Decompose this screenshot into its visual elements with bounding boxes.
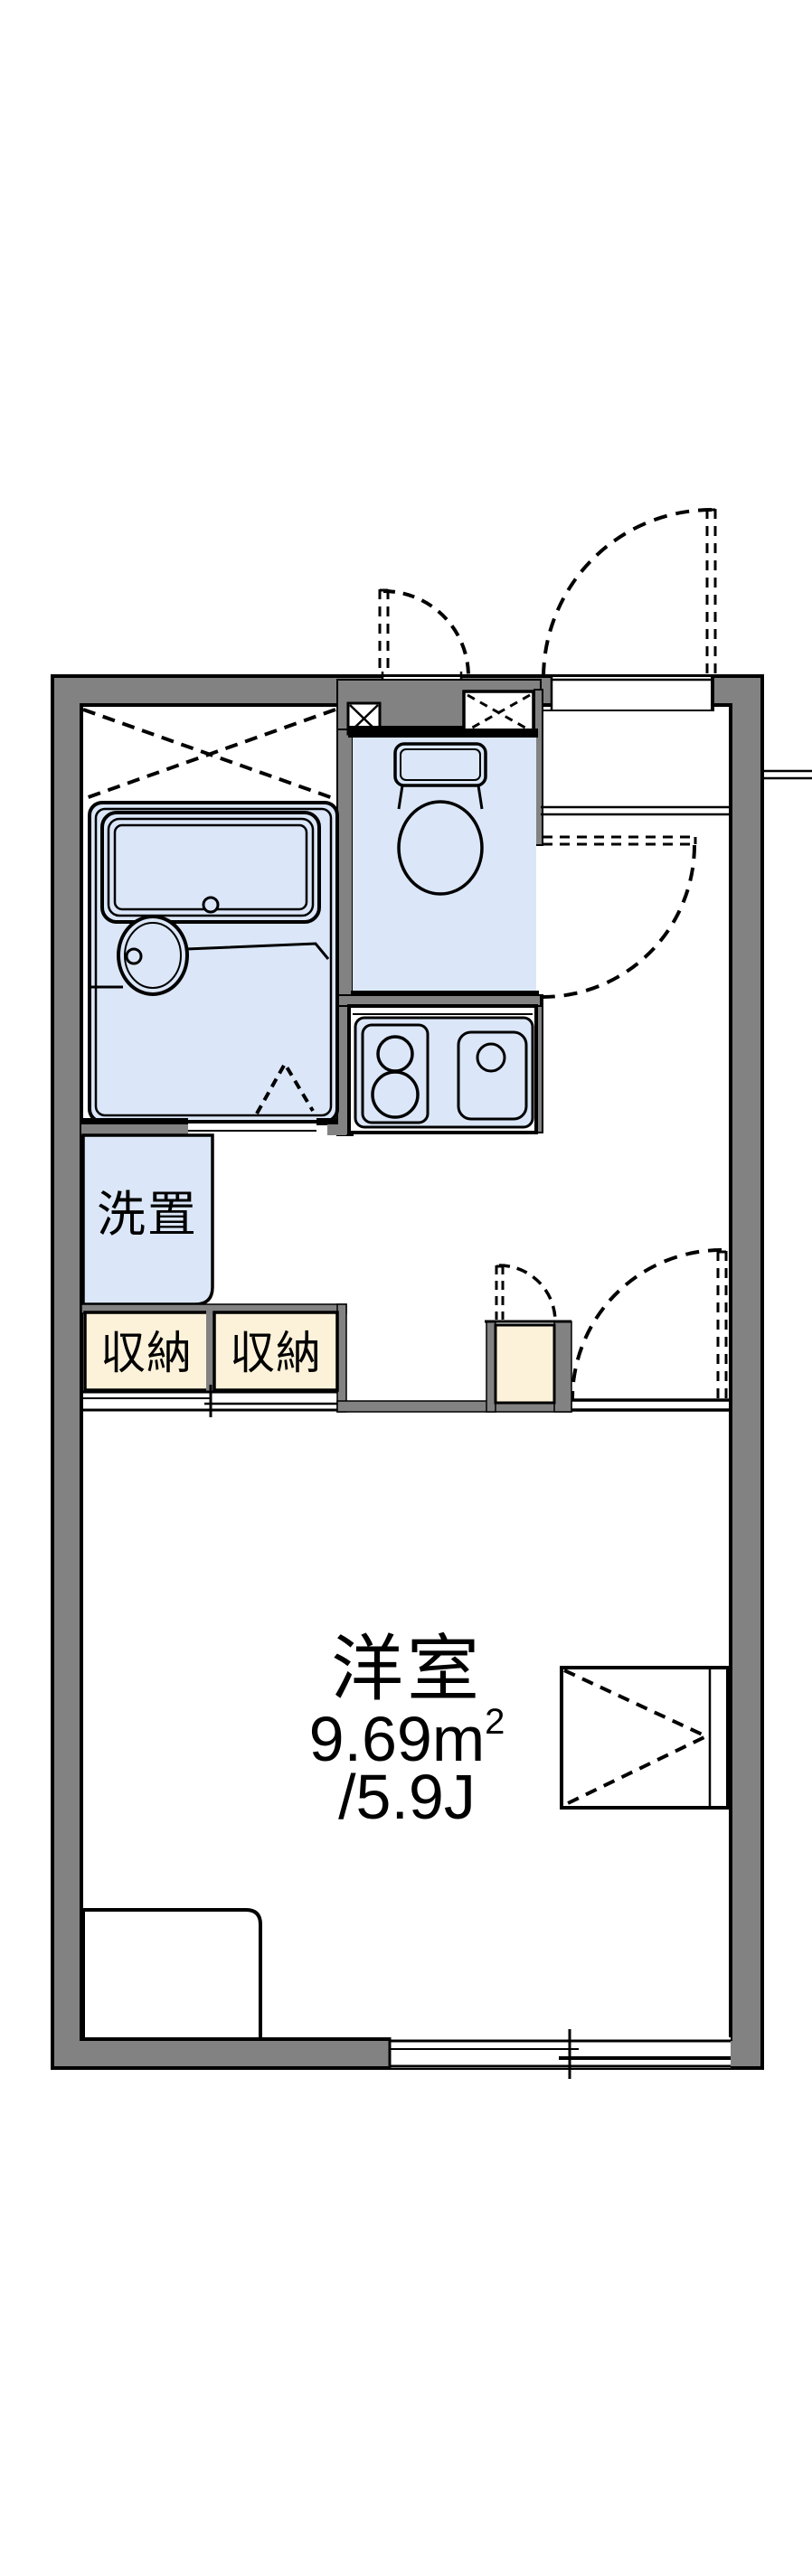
entry-door-swing [543,509,715,678]
sink-drain [477,1044,505,1071]
toilet-top-wall-line [348,729,538,738]
room-name-label: 洋室 [331,1629,483,1709]
storage-area: 収納 収納 [81,1304,346,1417]
tub-drain [203,898,218,912]
western-room: 洋室 9.69m2 /5.9J [83,1629,728,2039]
balcony-window [390,2029,731,2079]
service-door-swing [380,589,468,676]
floor-plan-page: 洗置 収納 収納 洋室 [0,0,812,2576]
entry-opening-floor [552,677,713,707]
toilet-door-swing [543,837,696,997]
entry-door-opening [541,676,713,711]
room-area-superscript: 2 [485,1702,505,1742]
room-door-swing [572,1250,726,1399]
storage-left-label: 収納 [100,1328,193,1378]
room-area-jo-label: /5.9J [338,1762,476,1832]
window-side-closet [562,1668,728,1808]
bed [83,1910,260,2039]
cabinet-right-jamb [554,1321,571,1412]
stove-burner-small [378,1037,412,1071]
bath-bottom-wall-right [316,1118,337,1125]
toilet-bowl [399,802,482,894]
toilet-bottom-wall-line [351,991,539,996]
washbasin [118,917,187,994]
washer-space: 洗置 [83,1135,212,1304]
toilet-room [348,729,539,996]
storage-right-label: 収納 [230,1328,322,1378]
cabinet-door-swing [496,1265,555,1321]
bath-bottom-gray-left [81,1124,188,1135]
toilet-fixture [395,744,486,894]
hall-cabinet [337,1321,731,1412]
basin-drain [127,949,141,964]
bathroom-overhead-x [83,710,335,799]
floor-plan-drawing: 洗置 収納 収納 洋室 [0,0,812,2576]
kitchen [349,1006,536,1133]
washer-label: 洗置 [97,1188,198,1242]
bathtub [102,813,319,922]
bath-bottom-gray-right [327,1124,346,1135]
stove-burner-large [373,1072,418,1117]
bath-bottom-wall-left [81,1118,188,1125]
bathroom [81,710,346,1135]
cabinet-box [496,1325,554,1403]
